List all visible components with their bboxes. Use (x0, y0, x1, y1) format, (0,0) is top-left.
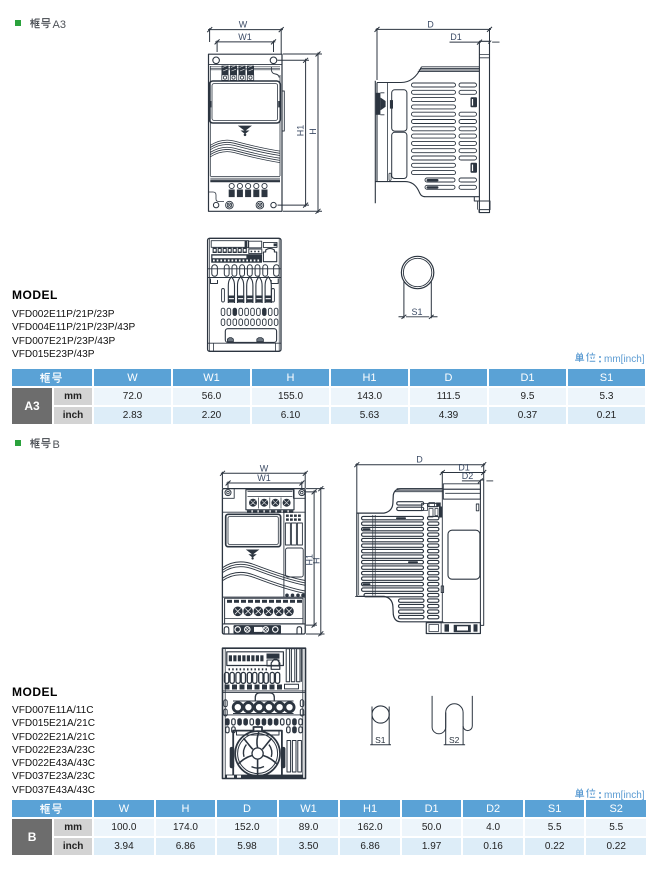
svg-text:W1: W1 (257, 473, 271, 483)
svg-text:S2: S2 (449, 735, 460, 745)
svg-text:D1: D1 (450, 32, 462, 42)
svg-text:H: H (308, 128, 318, 135)
svg-text:W: W (239, 20, 248, 30)
svg-text:B: B (53, 439, 60, 451)
svg-text:mm[inch]: mm[inch] (604, 354, 645, 365)
svg-text:D: D (427, 19, 434, 29)
svg-text:W1: W1 (238, 32, 252, 42)
svg-text:D2: D2 (462, 471, 474, 481)
svg-text:W: W (260, 463, 269, 473)
svg-text:D: D (416, 455, 423, 465)
svg-text:H1: H1 (305, 554, 315, 566)
svg-text:S1: S1 (411, 307, 422, 317)
svg-text:H1: H1 (296, 125, 306, 137)
svg-text:S1: S1 (375, 735, 386, 745)
